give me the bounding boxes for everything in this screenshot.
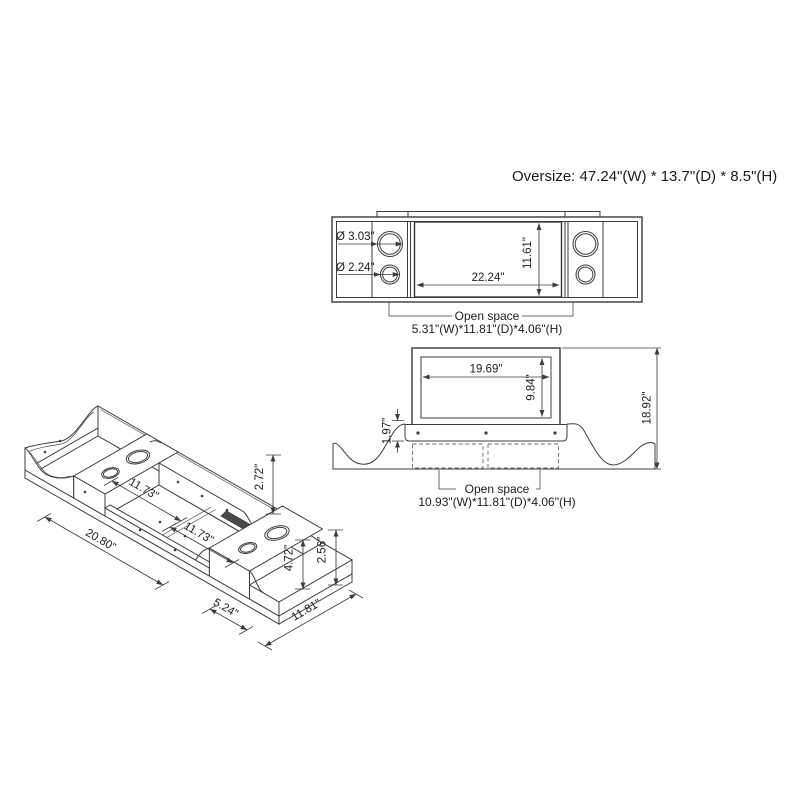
cup-holder-holes-left — [378, 232, 403, 285]
technical-drawing-page: Oversize: 47.24"(W) * 13.7"(D) * 8.5"(H)… — [0, 0, 800, 800]
dim-label-inner-depth: 11.61" — [522, 237, 534, 269]
dim-label-step-height: 2.56" — [317, 537, 329, 563]
top-view-open-space — [415, 222, 562, 297]
dim-label-strip-height: 1.97" — [382, 418, 394, 444]
hidden-open-space-right — [488, 444, 559, 468]
front-view: 19.69" 9.84" 1.97" 18.92" Open space 10.… — [333, 348, 661, 509]
open-space-dims: 5.31"(W)*11.81"(D)*4.06"(H) — [412, 322, 563, 336]
dim-label-dia-large: Ø 3.03" — [336, 231, 375, 243]
dim-label-opening-height: 9.84" — [526, 374, 538, 400]
dim-label-back-wall-height: 2.72" — [254, 464, 266, 490]
top-view-rear-tabs — [377, 212, 600, 218]
top-view-outline — [332, 212, 642, 303]
cup-hole-small-icon — [576, 265, 595, 284]
hidden-open-space-left — [413, 444, 484, 468]
dim-label-inner-width: 22.24" — [472, 272, 505, 284]
open-space-label: Open space — [455, 309, 520, 323]
dim-label-overall-length: 20.80" — [83, 527, 117, 554]
screw-hole-icon — [484, 431, 487, 434]
cup-hole-large-icon — [573, 232, 598, 257]
screw-hole-icon — [416, 431, 419, 434]
oversize-title: Oversize: 47.24"(W) * 13.7"(D) * 8.5"(H) — [512, 168, 777, 185]
cup-holder-holes-right — [573, 232, 598, 285]
dim-label-dia-small: Ø 2.24" — [336, 262, 375, 274]
top-view: Ø 3.03" Ø 2.24" 22.24" 11.61" Open space… — [332, 212, 642, 337]
dim-label-total-height: 18.92" — [642, 392, 654, 425]
front-upper-box — [412, 348, 560, 425]
open-space-label: Open space — [465, 482, 530, 496]
dim-label-step-depth: 5.24" — [211, 597, 240, 621]
screw-hole-icon — [553, 431, 556, 434]
technical-drawing-canvas: Oversize: 47.24"(W) * 13.7"(D) * 8.5"(H)… — [0, 0, 800, 800]
open-space-dims: 10.93"(W)*11.81"(D)*4.06"(H) — [418, 495, 575, 509]
dim-label-cup-panel-height: 4.72" — [284, 545, 296, 571]
dim-label-opening-width: 19.69" — [470, 364, 503, 376]
isometric-view: 11.73" 11.73" 20.80" 2.72" 4.72" 2.56" 5… — [25, 406, 363, 650]
